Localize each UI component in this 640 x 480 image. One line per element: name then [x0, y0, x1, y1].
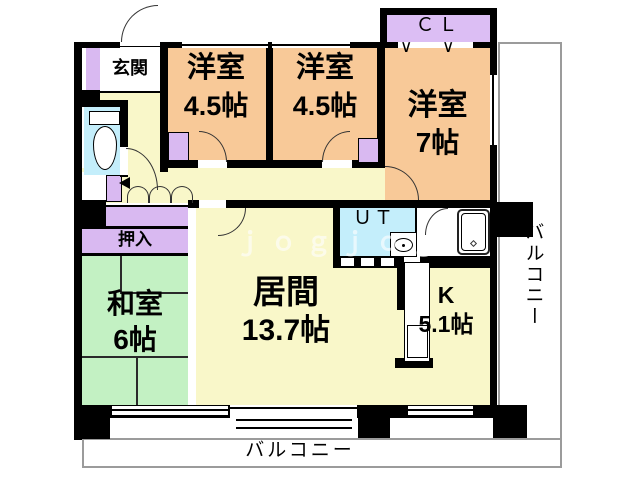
wall-cl-right — [490, 8, 497, 42]
window-top-1-line — [182, 44, 268, 46]
oshiire-line-top — [106, 205, 188, 207]
hanger-icon: ∨ — [400, 38, 412, 56]
folding-door-icon — [149, 186, 171, 203]
folding-door-icon — [171, 186, 193, 203]
wall-bed1-bed2 — [266, 42, 273, 168]
utility-label: ＵＴ — [335, 209, 413, 230]
kitchen-name: K — [400, 283, 492, 308]
bedroom2-size: 4.5帖 — [273, 92, 377, 121]
entrance-opening — [120, 42, 160, 48]
wall-living-north — [188, 200, 497, 208]
bedroom2-name: 洋室 — [273, 53, 377, 84]
window-bottom-1-line — [112, 409, 228, 411]
balcony-bottom-label: バルコニー — [222, 441, 378, 462]
living-name: 居間 — [186, 274, 386, 310]
tatami-line — [136, 356, 138, 405]
hanger-icon: ∨ — [442, 38, 454, 56]
floorplan: ∨ ∨ ｊｏｇｊｏｇ 玄関 洋室 4.5帖 洋室 4.5帖 洋室 7帖 ＣＬ Ｕ… — [0, 0, 640, 480]
balcony-right-label: バルコニー — [522, 202, 543, 347]
door-opening-bed3 — [377, 168, 385, 200]
pillar — [76, 405, 110, 439]
shoe-cabinet — [86, 48, 100, 93]
wall-left-chunk — [82, 200, 106, 229]
entrance-threshold — [120, 46, 160, 47]
window-top-2-line — [272, 44, 350, 46]
wall-cl-top — [380, 8, 497, 15]
toilet-tank — [89, 111, 120, 125]
tatami-line — [82, 356, 188, 358]
pillar — [358, 405, 390, 438]
balcony-slide-line — [236, 427, 352, 429]
bedroom1-size: 4.5帖 — [166, 92, 266, 121]
door-opening-living — [199, 200, 226, 208]
bedroom3-name: 洋室 — [385, 90, 490, 122]
kitchen-size: 5.1帖 — [400, 312, 492, 337]
ut-wall-notch — [341, 258, 354, 266]
balcony-door-line — [230, 407, 357, 409]
pillar — [493, 405, 527, 438]
window-bottom-2-line — [408, 409, 473, 411]
entrance-label: 玄関 — [100, 59, 160, 78]
balcony-slide-line — [236, 419, 352, 421]
bed2-closet — [358, 138, 379, 163]
door-marker-icon — [119, 177, 130, 189]
living-size: 13.7帖 — [186, 315, 386, 347]
window-right-line — [492, 75, 494, 145]
entrance-door-swing-icon — [121, 5, 158, 42]
bedroom1-name: 洋室 — [166, 53, 266, 84]
washitsu-size: 6帖 — [82, 325, 188, 355]
wall-corner-piece — [82, 90, 100, 102]
wall-cl-left — [380, 8, 387, 42]
closet-cl-label: ＣＬ — [387, 16, 490, 37]
oshiire-upper-fill — [106, 207, 188, 226]
oshiire-label: 押入 — [82, 231, 188, 249]
bedroom3-size: 7帖 — [385, 128, 490, 158]
folding-door-icon — [127, 186, 149, 203]
void-patch — [82, 172, 106, 203]
oshiire-line-bottom — [82, 253, 188, 256]
ut-wall-notch — [381, 258, 394, 266]
washitsu-name: 和室 — [82, 289, 188, 319]
ut-wall-notch — [361, 258, 374, 266]
oshiire-line-mid — [82, 226, 188, 229]
bed1-closet — [168, 132, 189, 161]
